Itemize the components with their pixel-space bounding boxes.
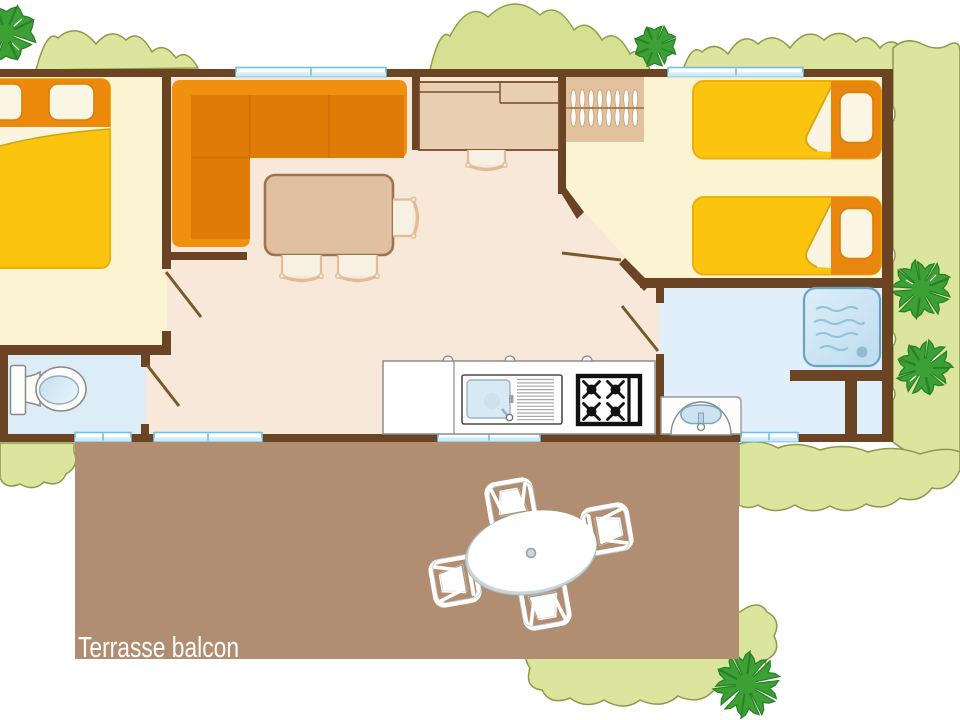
svg-text:Terrasse balcon: Terrasse balcon <box>78 632 239 664</box>
